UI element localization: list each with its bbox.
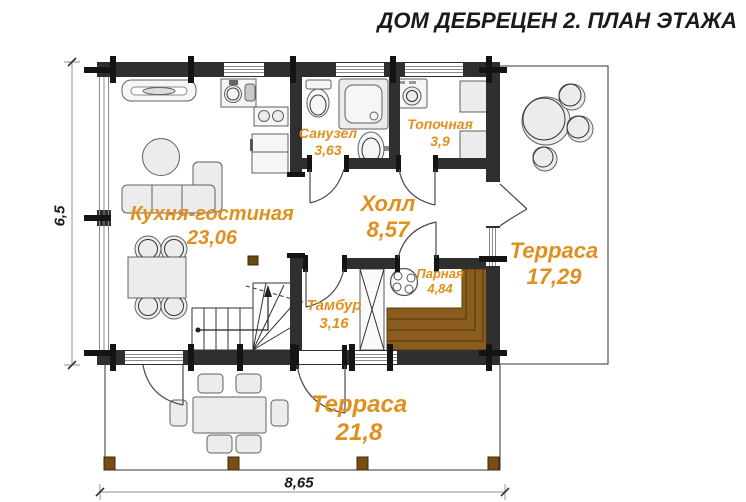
dimension-height-label: 6,5: [52, 206, 69, 227]
room-name: Топочная: [407, 116, 473, 133]
decor-circles: [522, 84, 593, 171]
room-label-hall: Холл 8,57: [361, 191, 416, 243]
room-label-terrace-right: Терраса 17,29: [510, 238, 598, 290]
room-name: Тамбур: [306, 297, 361, 315]
room-area: 17,29: [510, 264, 598, 290]
room-area: 3,63: [299, 142, 357, 159]
entrance-opening: [297, 351, 344, 364]
terrace-door-opening: [486, 182, 500, 226]
terrace-dining-set: [170, 374, 288, 453]
room-name: Кухня-гостиная: [130, 203, 294, 227]
sauna-stove: [391, 269, 418, 296]
armchair: [143, 139, 180, 176]
room-label-terrace-bottom: Терраса 21,8: [311, 391, 407, 448]
room-name: Парная: [416, 266, 463, 281]
room-label-boiler: Топочная 3,9: [407, 116, 473, 149]
room-label-vestibule: Тамбур 3,16: [306, 297, 361, 332]
room-label-kitchen-living: Кухня-гостиная 23,06: [130, 203, 294, 250]
cabinet: [460, 81, 487, 112]
chimney-marker: [248, 256, 258, 265]
room-area: 3,16: [306, 315, 361, 333]
fridge: [252, 134, 288, 173]
dimension-width-label: 8,65: [284, 475, 313, 492]
floor-plan-page: ДОМ ДЕБРЕЦЕН 2. ПЛАН ЭТАЖА Кухня-гостина…: [0, 0, 746, 502]
room-area: 8,57: [361, 217, 416, 243]
page-title: ДОМ ДЕБРЕЦЕН 2. ПЛАН ЭТАЖА: [377, 8, 737, 34]
hall-terrace-door: [500, 184, 527, 226]
room-area: 21,8: [311, 419, 407, 447]
left-window-wall: [97, 77, 111, 350]
room-name: Терраса: [311, 391, 407, 419]
toilet-tank: [306, 80, 331, 89]
room-label-sauna: Парная 4,84: [416, 266, 463, 297]
room-name: Санузел: [299, 125, 357, 142]
room-area: 3,9: [407, 133, 473, 150]
room-area: 4,84: [416, 281, 463, 296]
room-label-bathroom: Санузел 3,63: [299, 125, 357, 158]
terrace-posts: [104, 457, 499, 470]
room-area: 23,06: [130, 227, 294, 251]
kitchen-terrace-door: [143, 365, 183, 405]
room-name: Холл: [361, 191, 416, 217]
room-name: Терраса: [510, 238, 598, 264]
shaft: [360, 269, 384, 350]
